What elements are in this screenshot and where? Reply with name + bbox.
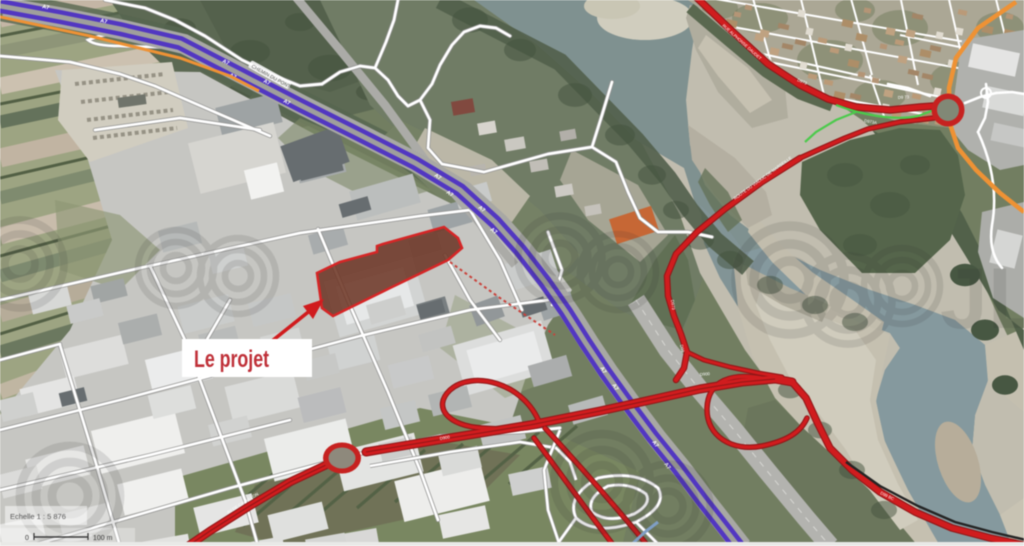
svg-text:Le projet: Le projet (194, 346, 269, 373)
svg-text:100 m: 100 m (93, 535, 113, 542)
svg-text:0: 0 (25, 535, 29, 542)
svg-text:Echelle 1 : 5 876: Echelle 1 : 5 876 (10, 512, 66, 521)
svg-text:JL: JL (940, 251, 1024, 347)
